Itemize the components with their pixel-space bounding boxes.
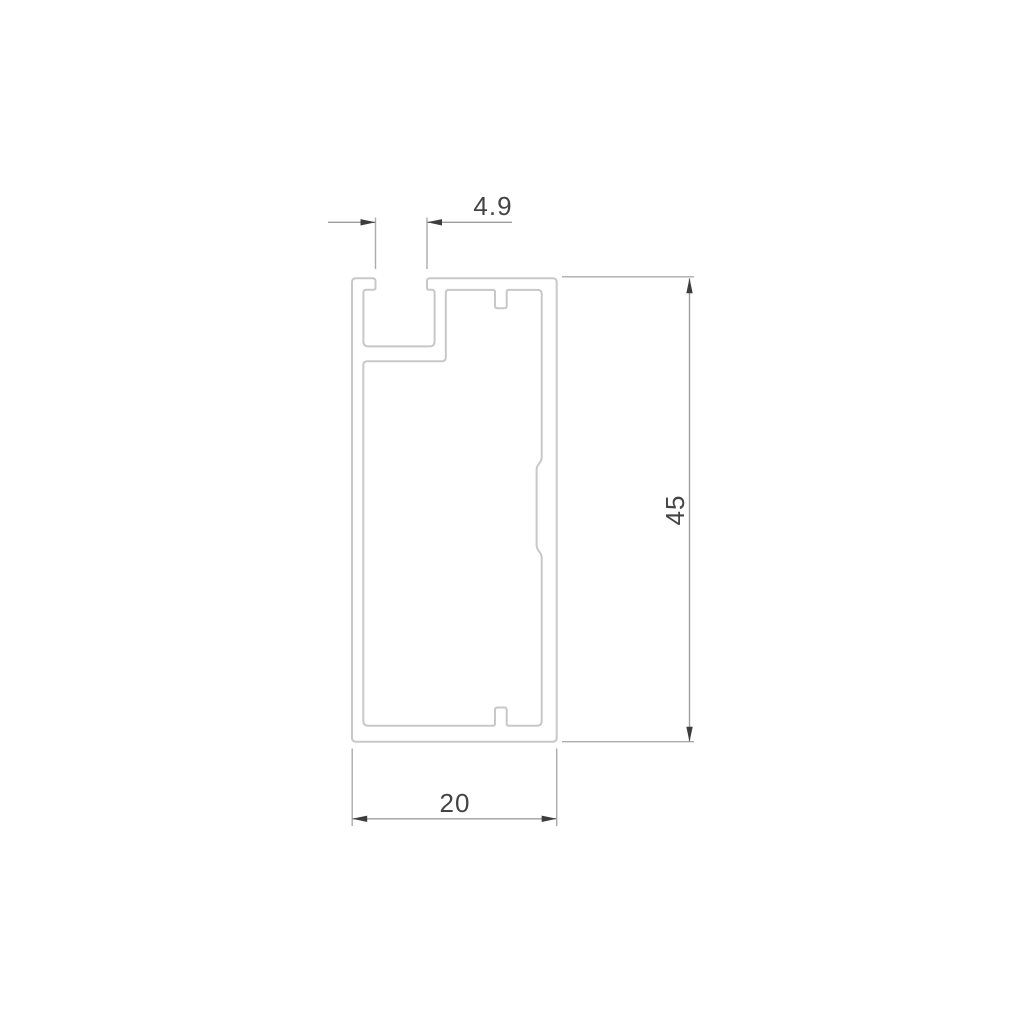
arrowhead-slot-left — [361, 219, 376, 225]
profile-outer-contour — [352, 278, 557, 741]
dimension-lines-group — [328, 218, 694, 827]
profile-drawing-svg: 4.9 45 20 — [0, 0, 1024, 1024]
profile-inner-contour — [363, 290, 541, 726]
arrowhead-width-right — [542, 816, 557, 822]
arrowhead-height-top — [686, 278, 692, 293]
dimension-label-slot-width: 4.9 — [473, 191, 512, 221]
dimension-label-width: 20 — [440, 788, 471, 818]
drawing-canvas: 4.9 45 20 — [0, 0, 1024, 1024]
profile-outline-group — [352, 278, 557, 741]
arrowhead-slot-right — [427, 219, 442, 225]
dimension-label-height: 45 — [660, 495, 690, 526]
arrowhead-width-left — [352, 816, 367, 822]
arrowhead-height-bottom — [686, 727, 692, 742]
